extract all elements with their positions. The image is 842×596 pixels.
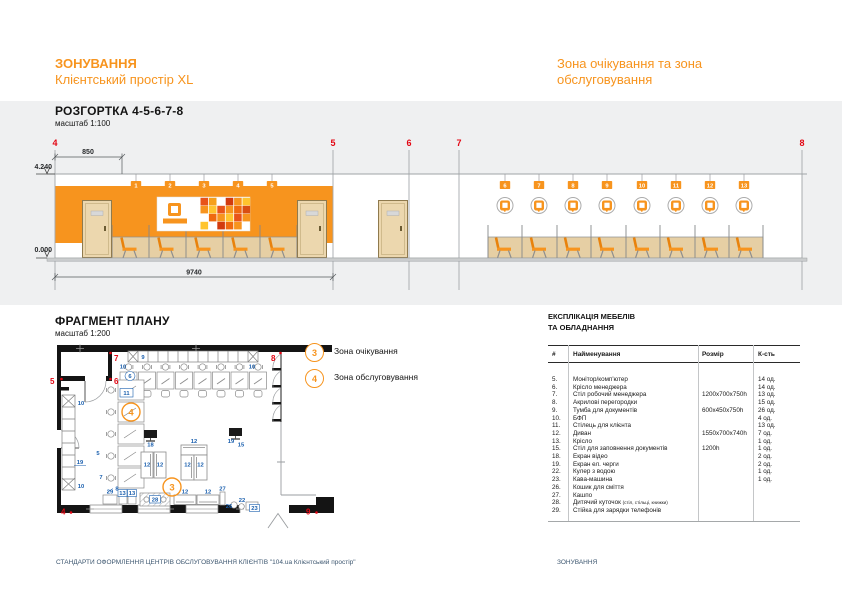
- label-client-chair: 11: [123, 391, 130, 397]
- grid-label-4: 4: [52, 138, 57, 148]
- label-bfp-right: 10: [249, 365, 255, 371]
- col-header-num: #: [548, 351, 568, 358]
- table-rule: [568, 345, 569, 521]
- sheet-header-left: ЗОНУВАННЯ Клієнтський простір XL: [55, 56, 193, 88]
- table-row: 8.Акрилові перегородки15 од.: [548, 399, 800, 407]
- waiting-counter-right: [488, 237, 763, 258]
- table-row: 5.Монітор/комп'ютер14 од.: [548, 376, 800, 384]
- label-sofa-1: 12: [144, 463, 150, 469]
- seat-tag-11: 11: [673, 183, 680, 189]
- table-rule: [753, 345, 754, 521]
- svg-text:9740: 9740: [186, 270, 202, 277]
- col-header-size: Розмір: [698, 351, 753, 358]
- grid-label-7: 7: [456, 138, 461, 148]
- label-sofa-7: 12: [205, 490, 211, 496]
- plan-walls: [57, 345, 334, 513]
- door-left: [83, 201, 112, 258]
- drawing-sheet: ЗОНУВАННЯ Клієнтський простір XL Зона оч…: [0, 0, 842, 596]
- seat-tag-13: 13: [741, 183, 748, 189]
- label-charge-29: 29: [107, 490, 114, 496]
- label-sofa-5: 12: [197, 463, 203, 469]
- dim-9740: 9740: [52, 270, 336, 282]
- plan-grid-8: 8: [271, 354, 276, 363]
- label-cabinet-bottom: 10: [78, 484, 84, 490]
- plan-scale: масштаб 1:200: [55, 329, 110, 338]
- level-bottom: 0.000: [34, 247, 52, 258]
- table-row: 26.Кошик для сміття: [548, 484, 800, 492]
- explication-table: # Найменування Розмір К-сть 5.Монітор/ко…: [548, 345, 800, 522]
- table-row: 9.Тумба для документів600х450х750h26 од.: [548, 407, 800, 415]
- label-coffee-23: 23: [251, 506, 258, 512]
- plan-title: ФРАГМЕНТ ПЛАНУ: [55, 314, 170, 328]
- table-body: 5.Монітор/комп'ютер14 од. 6.Крісло менед…: [548, 376, 800, 515]
- table-row: 15.Стіл для заповнення документів1200h1 …: [548, 445, 800, 453]
- seat-tag-10: 10: [639, 183, 645, 189]
- plan-grid-4: 4: [61, 508, 66, 517]
- elevation-grid-labels: 4 5 6 7 8: [52, 138, 804, 148]
- label-cooler-22: 22: [239, 498, 245, 504]
- queue-screen: [229, 428, 242, 439]
- svg-text:3: 3: [169, 483, 174, 494]
- brand-poster: [157, 197, 250, 231]
- grid-label-5: 5: [330, 138, 335, 148]
- legend-item-service: 4 Зона обслуговування: [305, 369, 420, 388]
- plan-grid-9: 9: [306, 508, 311, 517]
- label-chair-13b: 13: [129, 491, 136, 497]
- zone-badge-waiting: 3: [163, 478, 181, 496]
- table-row: 12.Диван1550х700х740h7 од.: [548, 430, 800, 438]
- label-desk-5: 5: [96, 451, 100, 457]
- seat-tag-7: 7: [537, 183, 540, 189]
- legend-badge-3: 3: [305, 343, 324, 362]
- footer-standards-text: СТАНДАРТИ ОФОРМЛЕННЯ ЦЕНТРІВ ОБСЛУГОВУВА…: [56, 559, 356, 566]
- elevation-scale: масштаб 1:100: [55, 119, 110, 128]
- col-header-qty: К-сть: [753, 351, 800, 358]
- label-desk-7: 7: [99, 475, 102, 481]
- label-trash-26: 26: [226, 504, 233, 510]
- label-cabinet-top: 10: [78, 401, 84, 407]
- seat-tag-2: 2: [168, 183, 171, 189]
- label-bfp-left: 10: [120, 365, 126, 371]
- svg-text:850: 850: [82, 149, 94, 156]
- elevation-drawing: 1 2 3 4 5 6 7 8 9 10 11 12 13 850 9: [0, 128, 842, 298]
- table-header-row: # Найменування Розмір К-сть: [548, 345, 800, 363]
- table-row: 29.Стійка для зарядки телефонів: [548, 507, 800, 515]
- seat-tag-12: 12: [707, 183, 713, 189]
- label-sofa-6: 12: [182, 490, 188, 496]
- label-sofa-4: 12: [184, 463, 190, 469]
- explication-title: ЕКСПЛІКАЦІЯ МЕБЕЛІВ ТА ОБЛАДНАННЯ: [548, 311, 635, 333]
- label-table-15: 15: [238, 443, 245, 449]
- plan-grid-7: 7: [114, 354, 119, 363]
- label-sofa-2: 12: [157, 463, 163, 469]
- table-row: 28.Дитячий куточок (стіл, стільці, книжк…: [548, 499, 800, 507]
- table-row: 7.Стіл робочий менеджера1200х700х750h13 …: [548, 391, 800, 399]
- dim-850: 850: [52, 149, 125, 174]
- grid-label-6: 6: [406, 138, 411, 148]
- plan-grid-6: 6: [114, 377, 119, 386]
- footer-section-text: ЗОНУВАННЯ: [557, 559, 597, 566]
- col-header-name: Найменування: [568, 351, 698, 358]
- table-row: 23.Кава-машина1 од.: [548, 476, 800, 484]
- label-screen-18: 18: [147, 443, 154, 449]
- door-right: [379, 201, 408, 258]
- floor-line: [47, 258, 807, 261]
- project-title: ЗОНУВАННЯ: [55, 56, 193, 72]
- side-cabinets: [62, 395, 75, 490]
- door-center: [298, 201, 327, 258]
- table-row: 22.Кулер з водою1 од.: [548, 468, 800, 476]
- plan-grid-5: 5: [50, 377, 55, 386]
- project-subtitle: Клієнтський простір XL: [55, 72, 193, 88]
- label-kids-28: 28: [152, 497, 159, 503]
- table-row: 18.Екран відео2 од.: [548, 453, 800, 461]
- level-top: 4.240: [34, 164, 55, 174]
- document-shelf: [128, 351, 258, 362]
- legend-label-service: Зона обслуговування: [334, 369, 420, 382]
- grid-label-8: 8: [799, 138, 804, 148]
- sheet-title: Зона очікування та зона обслуговування: [557, 56, 772, 88]
- label-chair-13a: 13: [119, 491, 126, 497]
- video-screen: [144, 430, 157, 441]
- table-row: 11.Стілець для клієнта13 од.: [548, 422, 800, 430]
- svg-text:4: 4: [128, 408, 134, 419]
- label-sofa-3: 12: [191, 439, 197, 445]
- label-wall-screen: 19: [77, 460, 84, 466]
- legend-item-waiting: 3 Зона очікування: [305, 343, 420, 362]
- label-screen-19: 19: [228, 439, 235, 445]
- legend-badge-4: 4: [305, 369, 324, 388]
- table-row: 19.Екран ел. черги2 од.: [548, 461, 800, 469]
- label-planter-27: 27: [219, 487, 225, 493]
- legend-label-waiting: Зона очікування: [334, 343, 420, 356]
- elevation-title: РОЗГОРТКА 4-5-6-7-8: [55, 104, 183, 118]
- table-rule: [698, 345, 699, 521]
